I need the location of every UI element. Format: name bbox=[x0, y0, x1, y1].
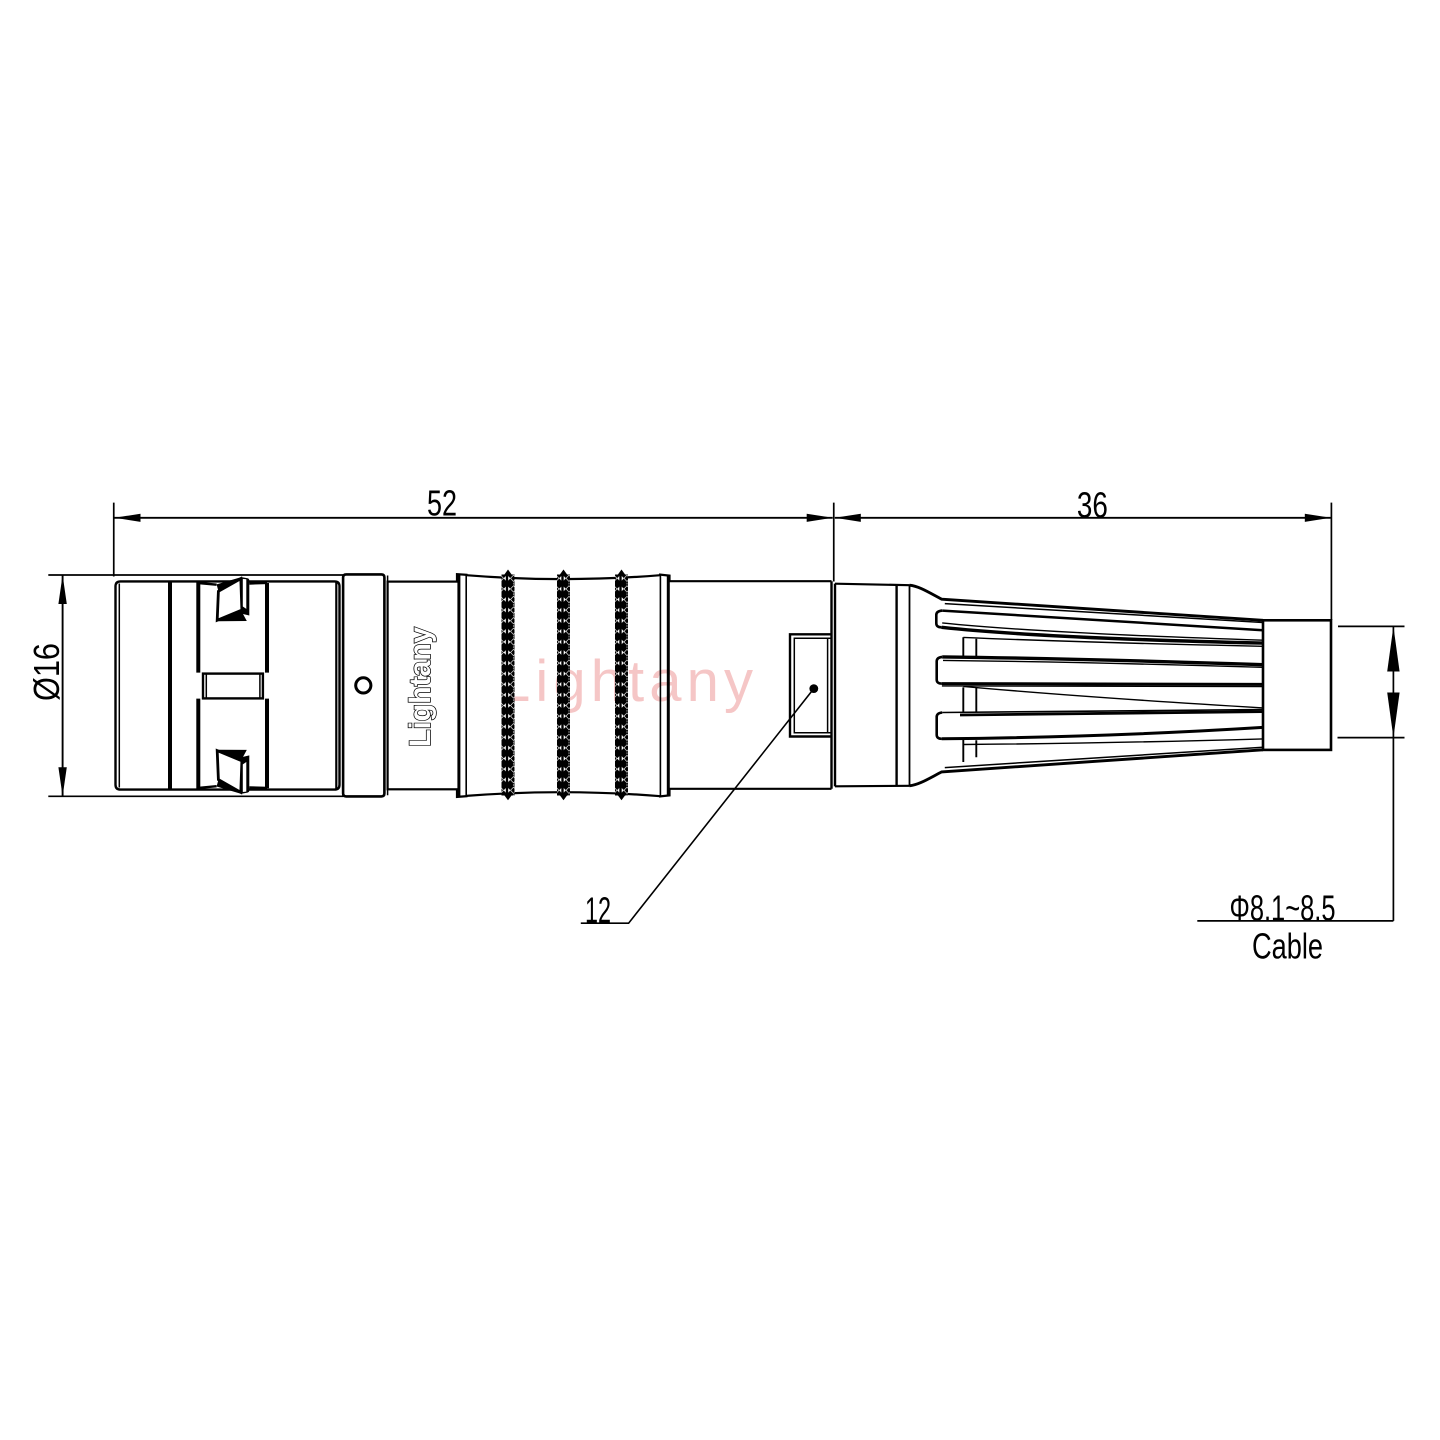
svg-text:Φ8.1~8.5: Φ8.1~8.5 bbox=[1230, 888, 1336, 929]
svg-text:12: 12 bbox=[585, 890, 611, 931]
svg-text:Lightany: Lightany bbox=[404, 627, 437, 747]
svg-text:36: 36 bbox=[1077, 484, 1108, 525]
svg-text:Ø16: Ø16 bbox=[26, 643, 67, 701]
svg-text:Lightany: Lightany bbox=[498, 649, 758, 714]
svg-text:52: 52 bbox=[427, 483, 457, 524]
svg-text:Cable: Cable bbox=[1252, 926, 1323, 967]
